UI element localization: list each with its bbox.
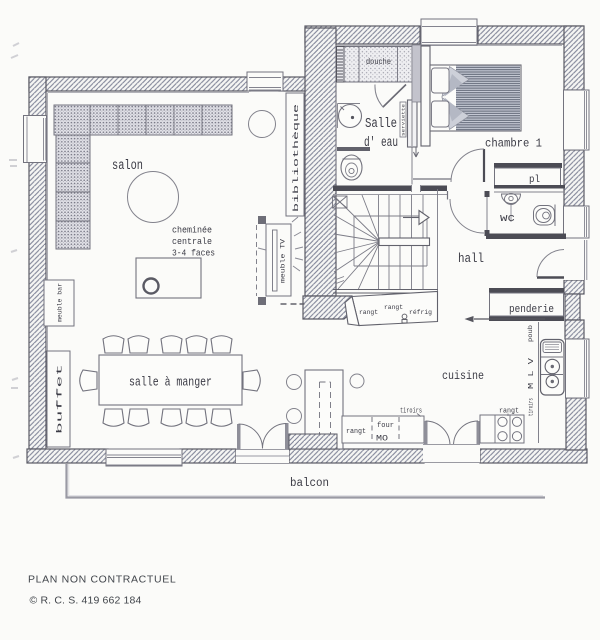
svg-text:3-4 faces: 3-4 faces bbox=[172, 248, 215, 259]
svg-text:PLAN NON CONTRACTUEL: PLAN NON CONTRACTUEL bbox=[28, 574, 176, 586]
svg-text:hall: hall bbox=[458, 252, 484, 266]
svg-text:rangt: rangt bbox=[384, 304, 403, 311]
svg-text:rangt: rangt bbox=[359, 309, 378, 316]
svg-text:douche: douche bbox=[366, 58, 391, 67]
svg-text:M L V: M L V bbox=[528, 357, 536, 389]
svg-text:balcon: balcon bbox=[290, 477, 329, 490]
svg-text:serviette: serviette bbox=[401, 104, 406, 136]
svg-text:chambre 1: chambre 1 bbox=[485, 137, 542, 151]
svg-text:penderie: penderie bbox=[509, 304, 554, 316]
svg-text:cheminée: cheminée bbox=[172, 225, 212, 236]
svg-text:réfrig: réfrig bbox=[409, 309, 432, 316]
svg-text:meuble TV: meuble TV bbox=[280, 238, 287, 283]
svg-text:bibliothèque: bibliothèque bbox=[293, 104, 301, 212]
svg-text:buffet: buffet bbox=[57, 364, 65, 434]
svg-text:pl: pl bbox=[529, 174, 540, 186]
svg-text:cuisine: cuisine bbox=[442, 369, 484, 383]
svg-text:salle à manger: salle à manger bbox=[129, 376, 212, 390]
svg-text:rangt: rangt bbox=[499, 408, 519, 416]
svg-text:© R. C. S. 419 662 184: © R. C. S. 419 662 184 bbox=[30, 595, 142, 607]
svg-text:salon: salon bbox=[112, 159, 143, 174]
svg-text:poub: poub bbox=[527, 325, 535, 342]
svg-text:rangt: rangt bbox=[346, 428, 366, 436]
svg-text:Salle: Salle bbox=[365, 117, 397, 132]
svg-text:tiroirs: tiroirs bbox=[528, 398, 536, 416]
svg-text:meuble bar: meuble bar bbox=[57, 283, 64, 322]
svg-text:wc: wc bbox=[500, 213, 515, 225]
svg-text:four: four bbox=[377, 422, 394, 430]
svg-text:centrale: centrale bbox=[172, 236, 212, 247]
svg-text:MO: MO bbox=[376, 435, 388, 444]
